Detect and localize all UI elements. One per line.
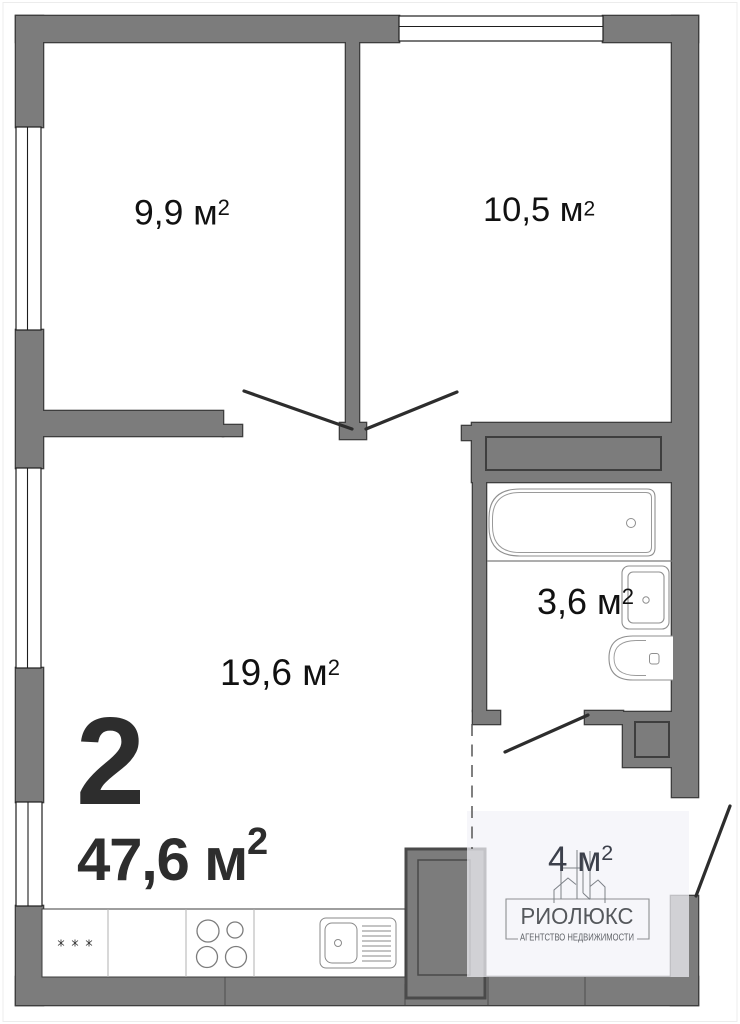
svg-text:47,6 м2: 47,6 м2	[77, 821, 268, 893]
svg-text:АГЕНТСТВО НЕДВИЖИМОСТИ: АГЕНТСТВО НЕДВИЖИМОСТИ	[520, 932, 634, 944]
svg-text:3,6 м2: 3,6 м2	[537, 581, 634, 622]
svg-text:РИОЛЮКС: РИОЛЮКС	[521, 903, 634, 929]
svg-text:19,6 м2: 19,6 м2	[220, 652, 340, 693]
svg-text:2: 2	[76, 693, 145, 831]
svg-text:9,9 м2: 9,9 м2	[134, 193, 230, 233]
svg-text:10,5 м2: 10,5 м2	[483, 191, 595, 229]
